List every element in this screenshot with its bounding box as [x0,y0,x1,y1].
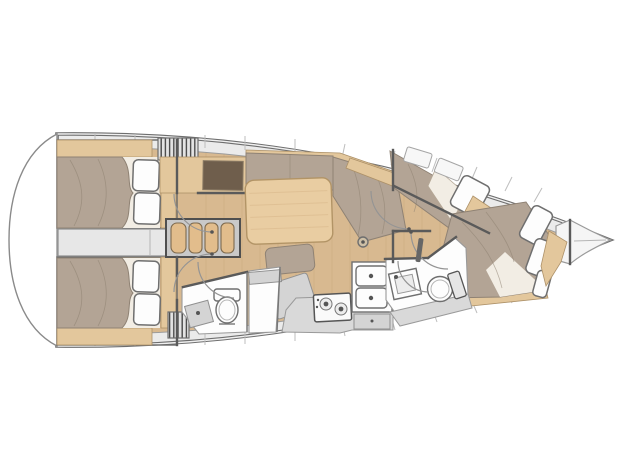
door-hinge [407,227,411,231]
basin-drain [196,311,200,315]
shelf-band [57,140,152,157]
step-tread [171,223,186,253]
door-hinge [210,252,214,256]
compression-post-center [361,240,365,244]
pillow [132,160,159,192]
transom-platform [9,134,57,346]
basin-faucet [394,275,398,279]
step-tread [221,223,234,253]
engine-bay [58,229,172,256]
double-berth-duvet [57,258,133,328]
saloon-table [245,178,333,245]
locker-handle [371,320,374,323]
door-hinge [409,230,413,234]
stove-burner-center [324,302,329,307]
engine-compartment [58,229,172,256]
chart-table [203,161,244,191]
stove-knob [317,299,319,301]
pillow [132,261,159,293]
stove-burner-center [339,307,344,312]
shelf-band [57,328,152,345]
double-berth-duvet [57,157,133,228]
faucet [369,274,373,278]
nav-station [160,157,246,193]
bow-tip [570,220,610,264]
pillow [133,294,160,326]
door-hinge [210,230,214,234]
pillow [133,193,160,225]
step-tread [205,223,218,253]
stove-knob [316,306,318,308]
faucet [369,296,373,300]
step-tread [189,223,202,253]
boat-floor-plan [0,0,622,466]
companionway-steps [166,219,240,257]
shower-seat [249,270,282,285]
